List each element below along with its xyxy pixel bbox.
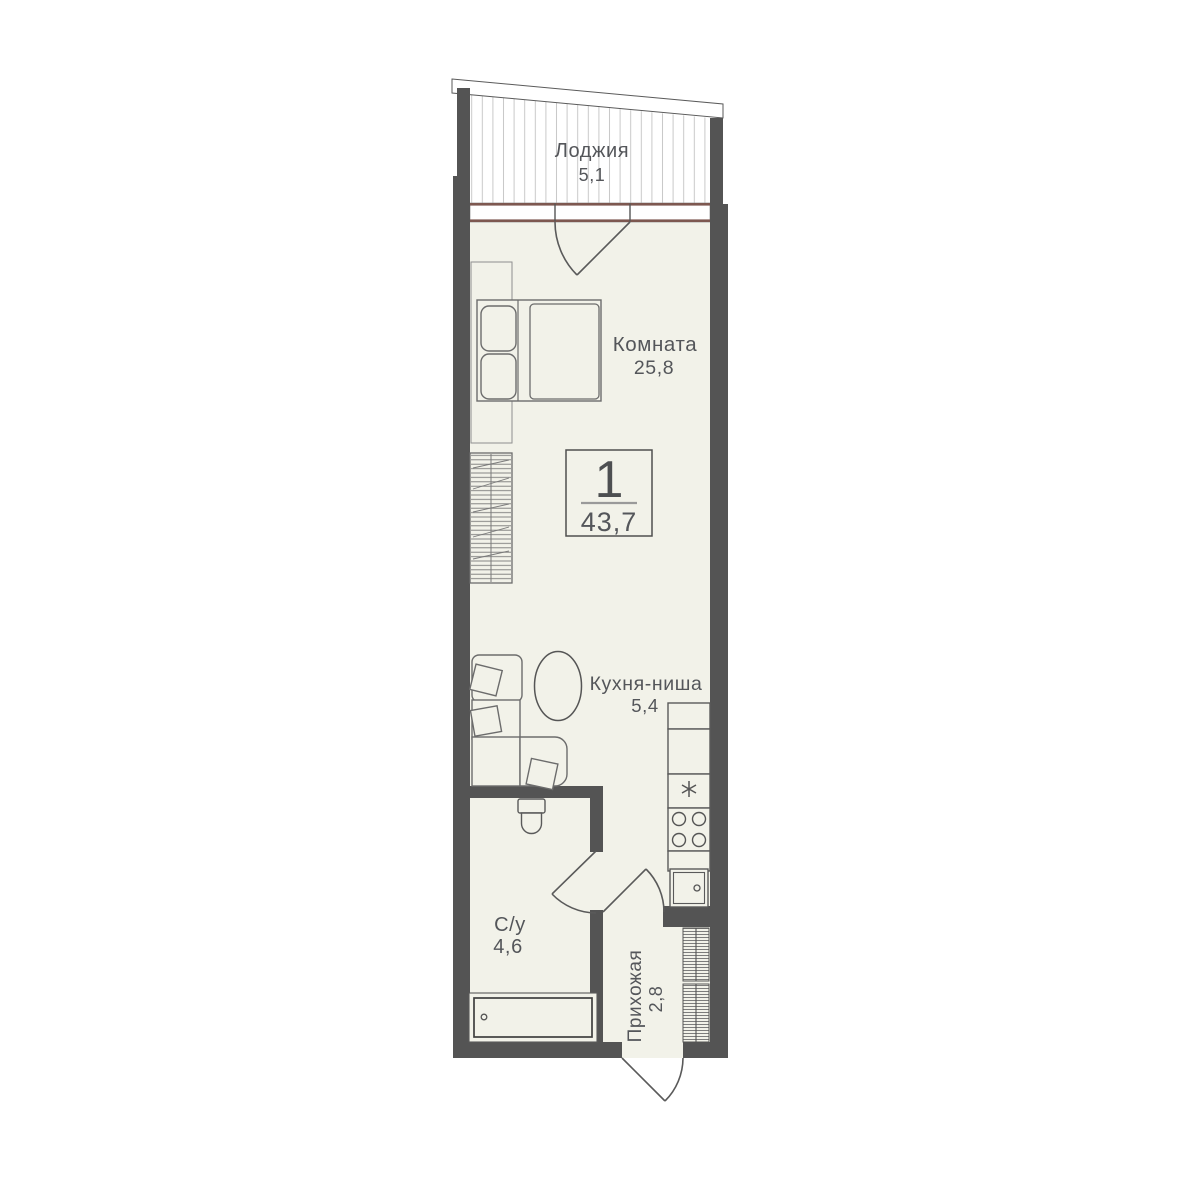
living-room-label: Комната [613,333,697,356]
sofa-pillow-3 [526,758,558,789]
hallway-closet-group [683,928,709,1042]
kitchen-area: 5,4 [631,695,659,716]
badge-rooms-count: 1 [595,451,624,509]
kitchen-group [668,703,710,907]
hallway-label: Прихожая [625,950,646,1043]
loggia-area: 5,1 [579,165,606,185]
area-badge: 1 43,7 [566,450,652,537]
living-room-area: 25,8 [634,357,674,379]
badge-total-area: 43,7 [581,507,638,537]
entrance-threshold [622,1042,683,1058]
toilet-tank [518,799,545,813]
sofa-pillow-1 [470,664,502,696]
oval-table [535,652,582,721]
loggia-label: Лоджия [555,140,629,162]
hallway-area: 2,8 [646,986,666,1013]
sofa-seat [472,737,520,786]
window-frame-line-top [470,203,710,206]
window-frame-line-bottom [470,219,710,222]
bed-pillow-2 [481,354,516,399]
kitchen-label: Кухня-ниша [590,673,703,695]
wall-bottom-left [453,1042,622,1058]
wall-bottom-right [683,1042,728,1058]
bathroom-area: 4,6 [493,936,523,958]
toilet-bowl [522,813,542,834]
kitchen-cabinet-2 [668,729,710,774]
window-sill-band [470,203,710,222]
sofa-pillow-2 [470,706,501,736]
bed-pillow-1 [481,306,516,351]
toilet-icon [518,799,545,834]
entrance-door-arc [622,1058,683,1101]
fridge-icon [670,869,708,907]
wall-bathroom-right-upper [590,798,603,852]
kitchen-cabinet-3 [668,851,710,871]
kitchen-cabinet-1 [668,703,710,729]
wall-left [453,176,470,1058]
wall-loggia-post-left [457,88,470,176]
wall-bathroom-top [470,786,603,798]
wardrobe-group [470,453,512,583]
wall-right [710,204,728,1058]
floor-plan-canvas: Лоджия 5,1 Комната 25,8 Кухня-ниша 5,4 С… [0,0,1181,1181]
wall-kitchen-bottom [663,906,710,927]
floor-plan: Лоджия 5,1 Комната 25,8 Кухня-ниша 5,4 С… [0,0,1181,1181]
bathtub-outer [469,993,597,1042]
bathtub-icon [469,993,597,1042]
bathroom-label: С/у [494,914,526,936]
wall-loggia-post-right [710,118,723,204]
